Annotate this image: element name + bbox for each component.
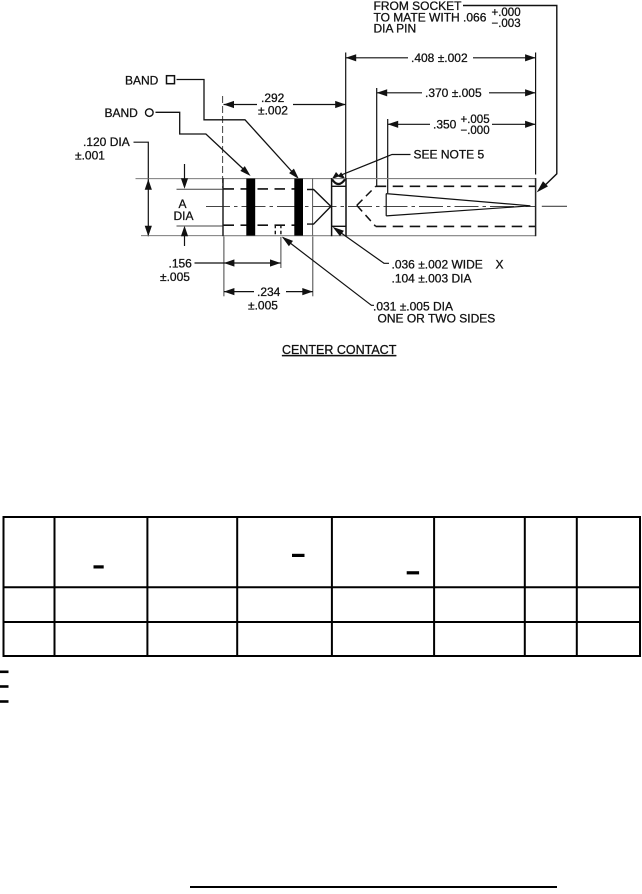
- svg-text:±.001: ±.001: [75, 149, 105, 163]
- svg-text:.234: .234: [257, 285, 281, 299]
- svg-text:.408 ±.002: .408 ±.002: [411, 51, 468, 65]
- svg-text:.370 ±.005: .370 ±.005: [425, 86, 482, 100]
- svg-text:−.003: −.003: [492, 18, 521, 30]
- svg-text:.104 ±.003 DIA: .104 ±.003 DIA: [392, 272, 472, 286]
- svg-text:SEE NOTE 5: SEE NOTE 5: [414, 148, 485, 162]
- svg-text:±.005: ±.005: [248, 299, 278, 313]
- svg-text:CENTER CONTACT: CENTER CONTACT: [282, 343, 397, 357]
- svg-text:BAND: BAND: [105, 106, 139, 120]
- svg-text:ONE OR TWO SIDES: ONE OR TWO SIDES: [378, 311, 496, 325]
- svg-text:.350: .350: [433, 118, 457, 132]
- svg-text:±.002: ±.002: [258, 104, 288, 118]
- svg-text:DIA: DIA: [174, 209, 194, 223]
- svg-text:DIA PIN: DIA PIN: [374, 22, 417, 36]
- svg-text:BAND: BAND: [125, 74, 159, 88]
- svg-text:.036 ±.002 WIDE: .036 ±.002 WIDE: [392, 258, 483, 272]
- svg-text:.156: .156: [169, 257, 193, 271]
- svg-text:−.000: −.000: [461, 125, 490, 137]
- svg-text:X: X: [496, 258, 504, 272]
- svg-text:.120 DIA: .120 DIA: [83, 135, 130, 149]
- svg-text:±.005: ±.005: [160, 270, 190, 284]
